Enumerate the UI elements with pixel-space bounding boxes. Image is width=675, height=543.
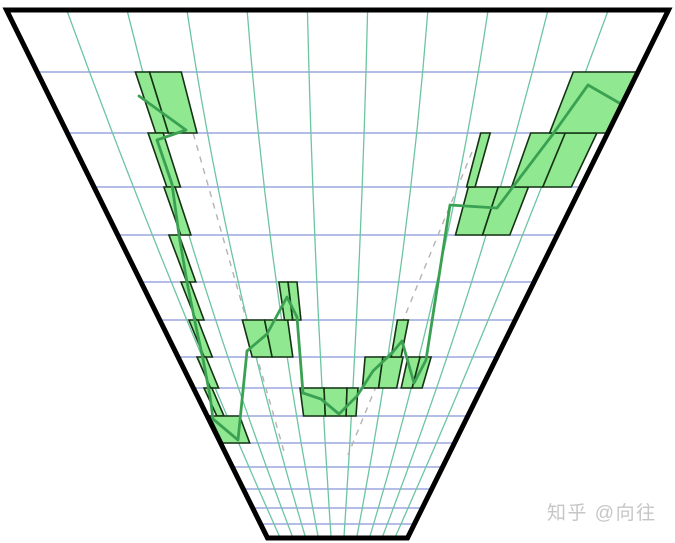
figure-canvas: 知乎 @向往 <box>0 0 675 543</box>
perspective-grid-chart <box>0 0 675 543</box>
grid-vertical-line <box>382 10 548 538</box>
grid-vertical-line <box>187 10 306 538</box>
watermark: 知乎 @向往 <box>547 498 657 525</box>
grid-vertical-line <box>369 10 488 538</box>
grid-vertical-line <box>307 10 331 538</box>
plot-area <box>33 10 642 538</box>
grid-vertical-line <box>344 10 368 538</box>
candle-bar <box>467 133 491 187</box>
candle-bars <box>135 72 638 443</box>
